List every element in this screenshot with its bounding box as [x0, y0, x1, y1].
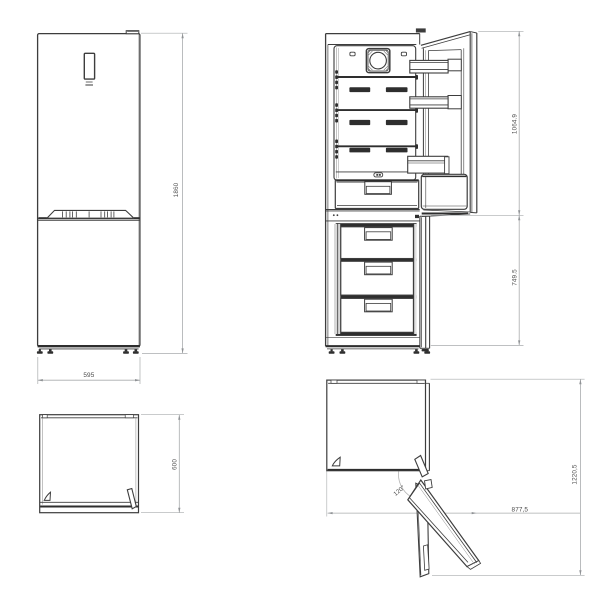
- svg-text:595: 595: [83, 372, 94, 379]
- svg-text:749.5: 749.5: [511, 269, 518, 286]
- svg-text:600: 600: [171, 459, 178, 470]
- svg-text:1220,5: 1220,5: [572, 464, 579, 484]
- svg-text:877,5: 877,5: [512, 506, 529, 513]
- svg-text:1860: 1860: [173, 182, 180, 197]
- svg-text:1064.9: 1064.9: [511, 114, 518, 134]
